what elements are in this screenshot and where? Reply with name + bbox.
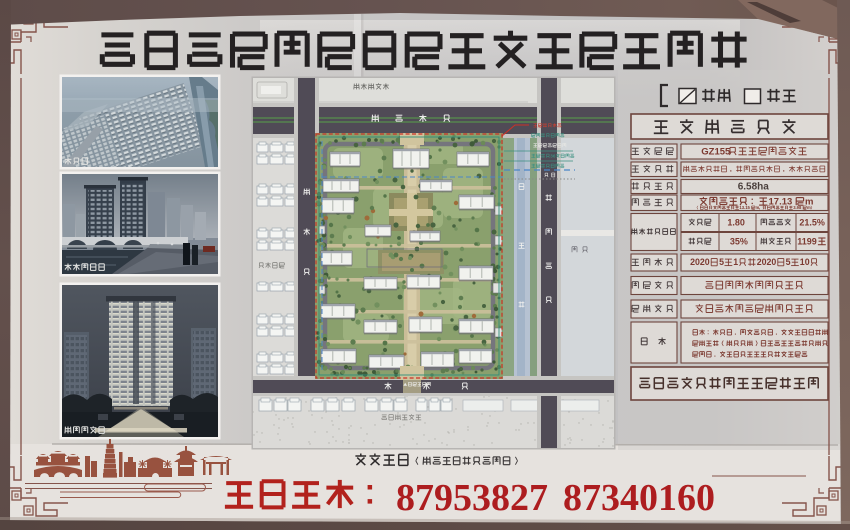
svg-text:87340160: 87340160 [563, 477, 715, 519]
svg-text:1.80: 1.80 [727, 217, 745, 227]
svg-text:13.15: 13.15 [739, 205, 750, 210]
svg-text:3.98: 3.98 [793, 205, 802, 210]
svg-text:5: 5 [786, 257, 791, 267]
svg-text:2020: 2020 [690, 257, 710, 267]
svg-text:87953827: 87953827 [396, 477, 548, 519]
svg-text:35%: 35% [730, 236, 748, 246]
svg-text:6.58ha: 6.58ha [738, 182, 770, 193]
svg-text:2020: 2020 [757, 257, 777, 267]
svg-text:m: m [807, 205, 811, 210]
svg-text:GZ155: GZ155 [701, 146, 731, 157]
svg-text:1: 1 [733, 257, 738, 267]
svg-text:36: 36 [550, 154, 556, 159]
svg-text:1199: 1199 [797, 236, 817, 246]
svg-text:21.5%: 21.5% [799, 217, 825, 227]
svg-text:m: m [756, 205, 760, 210]
svg-text:5: 5 [719, 257, 724, 267]
svg-text:10: 10 [800, 257, 810, 267]
